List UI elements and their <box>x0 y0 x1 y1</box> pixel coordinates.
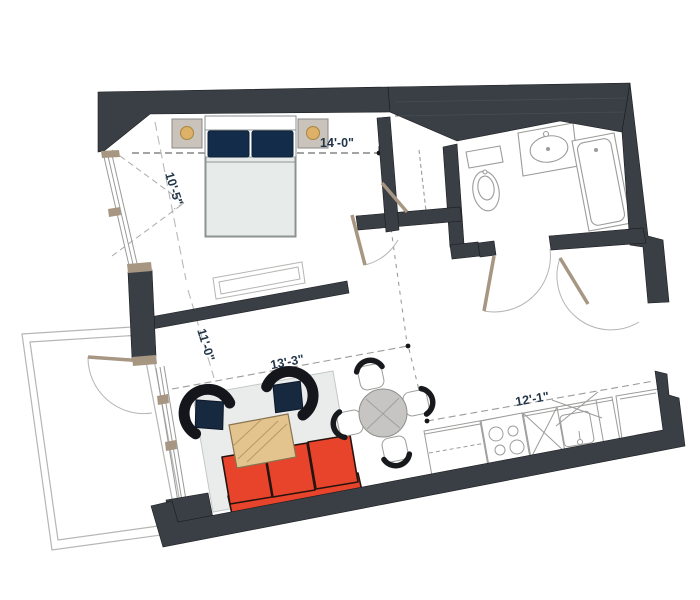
dining-chair-bottom <box>380 435 411 469</box>
entry-door-leaf <box>560 258 588 304</box>
entry-door-arc <box>557 258 639 330</box>
closet-rod-dashed <box>419 150 426 211</box>
dim-label-bedroom-depth: 10'-5" <box>162 171 185 208</box>
sill-6 <box>165 440 177 451</box>
burner-3 <box>495 445 505 455</box>
wall-top-right <box>388 83 630 141</box>
toilet-tank <box>466 146 503 168</box>
dining-chair-top <box>355 358 386 392</box>
wall-bathroom-bottom-right <box>549 228 646 250</box>
dim-dot-2 <box>406 344 411 349</box>
bathroom-door-leaf <box>484 256 494 311</box>
sill-5 <box>157 394 169 405</box>
bed-headboard <box>205 116 296 130</box>
wall-right-upper <box>622 83 669 303</box>
pillow-right <box>252 131 293 157</box>
dim-dot-3 <box>425 419 430 424</box>
vanity-drain <box>547 148 550 151</box>
kitchen-sink <box>559 411 594 448</box>
pillow-left <box>208 131 249 157</box>
bathroom-vanity <box>518 123 578 176</box>
dining-table <box>359 389 407 437</box>
floor-plan-page: 14'-0" 10'-5" 11'-0" 13'-3" 12'-1" <box>0 0 700 600</box>
bed-duvet <box>206 157 295 236</box>
wall-bathroom-bottom-left <box>478 241 496 257</box>
bed-pillows <box>208 131 293 157</box>
sink-faucet <box>578 440 583 445</box>
door-leaves <box>88 183 588 361</box>
sill-3 <box>101 150 120 158</box>
toilet <box>466 146 503 213</box>
burner-1 <box>489 427 503 441</box>
toilet-flush-button <box>483 170 487 174</box>
wall-bathroom-left <box>443 144 464 247</box>
sink-basin <box>559 411 594 448</box>
bedroom-furniture <box>172 116 328 299</box>
lamp-left <box>181 127 194 140</box>
living-room-window <box>156 366 186 502</box>
bathtub-outer <box>572 133 631 231</box>
wall-bathroom-left-foot <box>450 242 480 259</box>
sill-4 <box>108 207 121 217</box>
sofa-cushion-3 <box>308 435 358 489</box>
bed <box>205 116 296 237</box>
burner-4 <box>510 440 524 454</box>
bathtub-drain <box>595 149 598 152</box>
bedroom-door-arc <box>365 240 398 265</box>
living-window-line-2 <box>160 367 182 501</box>
dim-label-bedroom-width: 14'-0" <box>320 136 354 150</box>
vanity-faucet <box>544 132 549 137</box>
wall-closet-bar <box>356 207 462 230</box>
dim-label-kitchen-length: 12'-1" <box>514 389 550 409</box>
balcony-door-arc <box>88 357 152 414</box>
burner-2 <box>508 426 518 436</box>
dim-label-living-width: 11'-0" <box>194 327 217 363</box>
bathtub <box>572 133 631 231</box>
apartment-floor-plan: 14'-0" 10'-5" 11'-0" 13'-3" 12'-1" <box>0 0 700 600</box>
wall-left-pier <box>128 270 156 358</box>
lamp-right <box>307 127 320 140</box>
